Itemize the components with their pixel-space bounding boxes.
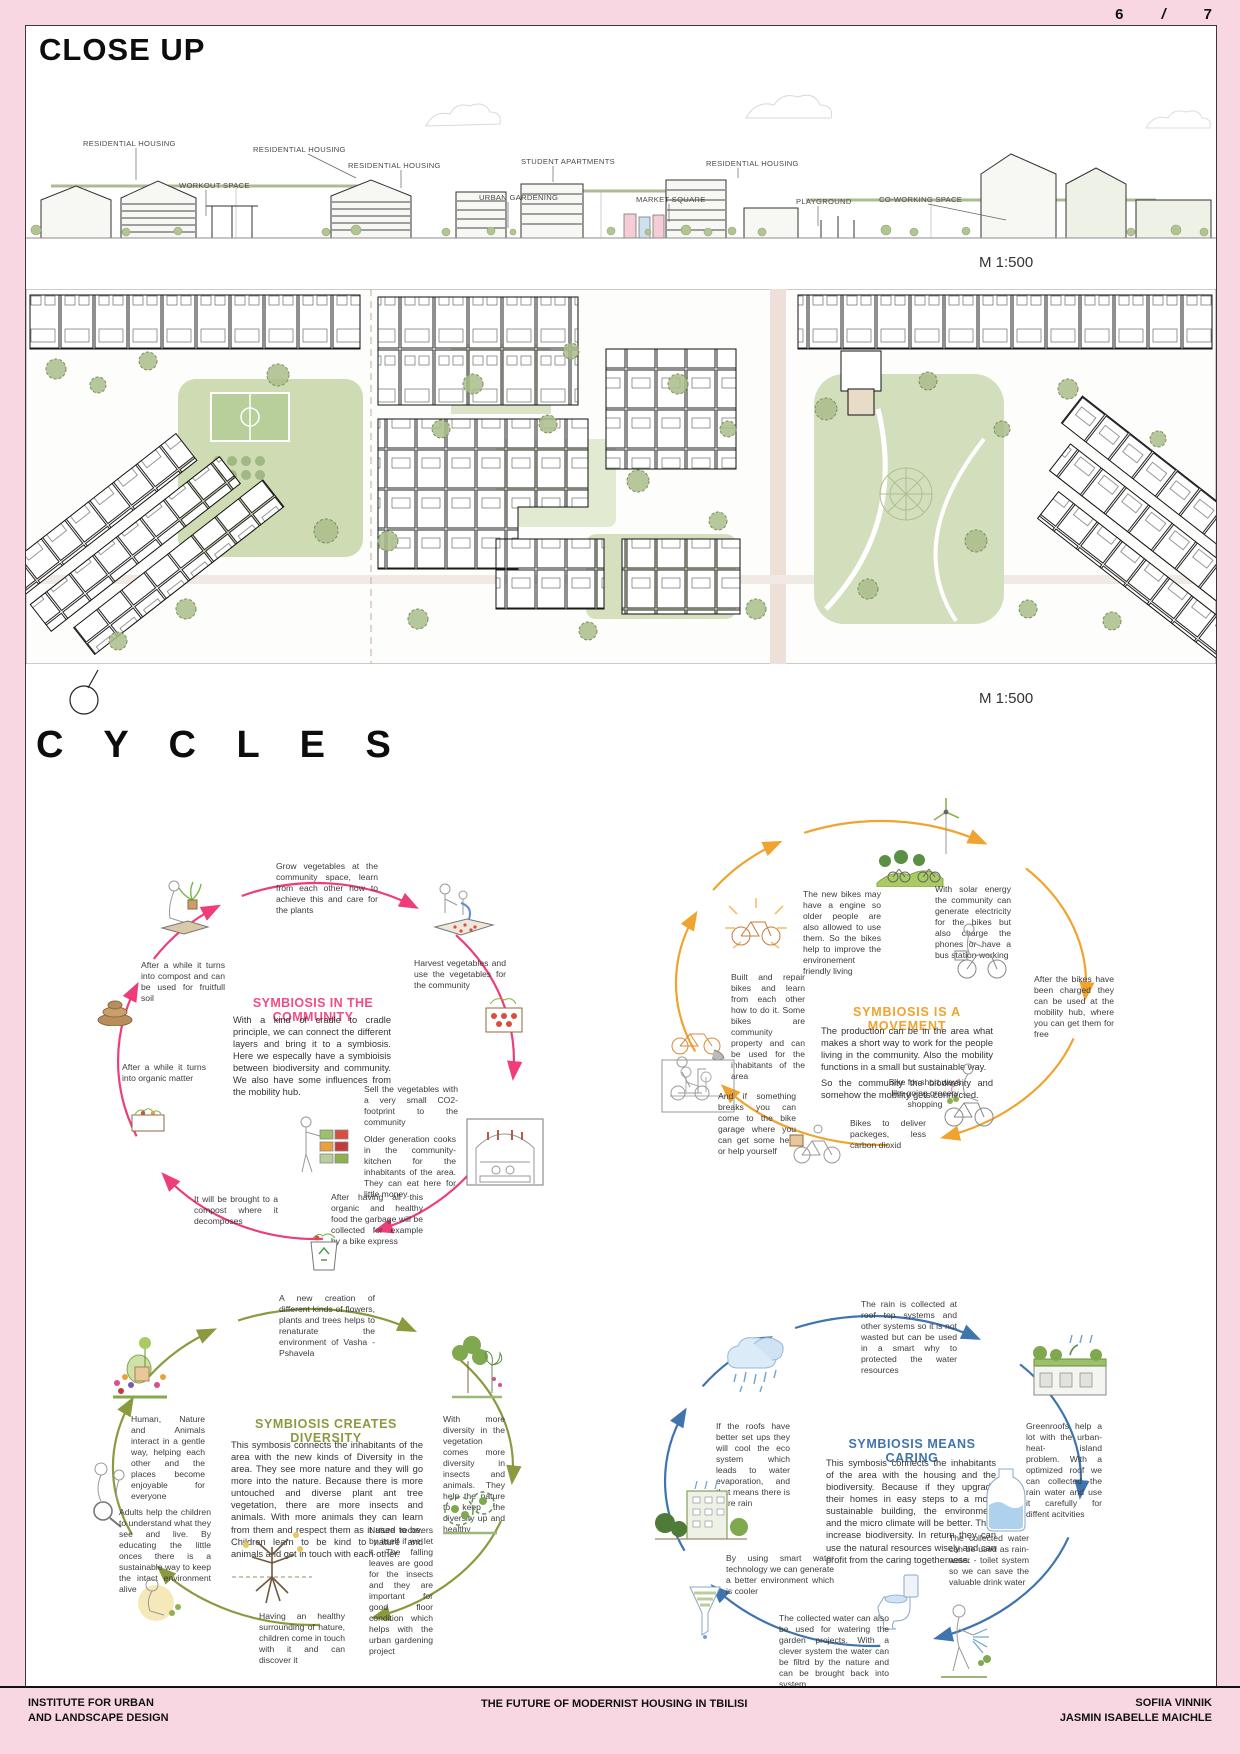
site-plan [26, 289, 1216, 664]
footer-author-1: SOFIIA VINNIK [1060, 1696, 1212, 1711]
footer: INSTITUTE FOR URBAN AND LANDSCAPE DESIGN… [0, 1686, 1240, 1754]
cycle-note: Sell the vegetables with a very small CO… [364, 1084, 458, 1128]
elevation-drawing: RESIDENTIAL HOUSING WORKOUT SPACE RESIDE… [26, 88, 1216, 268]
cycle-note: The collected water can be used as rain-… [949, 1533, 1029, 1588]
cycles-heading: C Y C L E S [36, 724, 406, 767]
green-facade-building-icon [653, 1477, 749, 1543]
water-jug-icon [983, 1467, 1029, 1533]
page-number-left: 6 [1115, 6, 1123, 23]
elevation-label: CO-WORKING SPACE [879, 195, 962, 204]
cycle-community: Grow vegetables at the community space, … [86, 856, 551, 1276]
cargo-bike-icon [953, 917, 1011, 985]
elevation-scale: M 1:500 [979, 254, 1033, 271]
cycle-note: After a while it turns into compost and … [141, 960, 225, 1004]
cycle-caring: The rain is collected at roof top system… [631, 1291, 1116, 1681]
detail-marker [62, 668, 122, 718]
footer-author-2: JASMIN ISABELLE MAICHLE [1060, 1711, 1212, 1726]
diverse-trees-icon [448, 1335, 506, 1399]
water-filter-icon [686, 1583, 724, 1641]
flower-meadow-icon [109, 1333, 171, 1401]
cycle-note: Greenroofs help a lot with the urban- he… [1026, 1421, 1102, 1520]
cycle-note: Human, Nature and Animals interact in a … [131, 1414, 205, 1502]
cycle-note: Bikes to deliver packeges, less carbon d… [850, 1118, 926, 1151]
community-kitchen-icon [466, 1118, 544, 1186]
elevation-label: WORKOUT SPACE [179, 181, 250, 190]
footer-institute-line2: AND LANDSCAPE DESIGN [28, 1711, 169, 1726]
market-stand-icon [294, 1114, 352, 1178]
elevation-label: MARKET SQUARE [636, 195, 706, 204]
bushes-icon [439, 1477, 501, 1541]
cycle-note: By using smart water technology we can g… [726, 1553, 834, 1597]
cycle-note: Bike for short ways like going grocery s… [886, 1077, 964, 1110]
vegetable-crate-icon [482, 996, 526, 1038]
footer-project-title: THE FUTURE OF MODERNIST HOUSING IN TBILI… [481, 1696, 747, 1710]
garden-watering-icon [931, 1601, 993, 1685]
planting-icon [156, 878, 212, 936]
solar-bike-icon [723, 896, 789, 958]
elevation-label: RESIDENTIAL HOUSING [348, 161, 441, 170]
elevation-label: PLAYGROUND [796, 197, 852, 206]
page-number-right: 7 [1204, 6, 1212, 23]
cycle-note: The new bikes may have a engine so older… [803, 889, 881, 977]
cycle-note: After having all this organic and health… [331, 1192, 423, 1247]
siteplan-scale: M 1:500 [979, 690, 1033, 707]
greenroof-building-icon [1026, 1333, 1110, 1399]
page-number-separator: / [1161, 6, 1165, 23]
cycle-note: A new creation of different kinds of flo… [279, 1293, 375, 1359]
cycle-note: And if something breaks you can come to … [718, 1091, 796, 1157]
rain-cloud-icon [714, 1326, 788, 1396]
watering-icon [431, 881, 495, 939]
bike-lane-trees-icon [875, 847, 945, 887]
page-title: CLOSE UP [39, 32, 205, 68]
footer-institute-line1: INSTITUTE FOR URBAN [28, 1696, 169, 1711]
cycle-note: Grow vegetables at the community space, … [276, 861, 378, 916]
cycle-note: It will be brought to a compost where it… [194, 1194, 278, 1227]
compost-pile-icon [96, 994, 134, 1026]
child-discovering-icon [126, 1569, 188, 1627]
page-numbers: 6 / 7 [1115, 6, 1212, 23]
cycle-note: Harvest vegetables and use the vegetable… [414, 958, 506, 991]
cycle-diversity: A new creation of different kinds of flo… [81, 1281, 546, 1653]
cycle-note: Nature recovers by itself if we let it. … [369, 1525, 433, 1657]
cycle-note: After the bikes have been charged they c… [1034, 974, 1114, 1040]
elevation-label: STUDENT APARTMENTS [521, 157, 615, 166]
cycle-note: The collected water can also be used for… [779, 1613, 889, 1687]
scooter-icon [668, 1053, 712, 1103]
elevation-label: RESIDENTIAL HOUSING [253, 145, 346, 154]
cycle-note: After a while it turns into organic matt… [122, 1062, 206, 1084]
vegetable-box-icon [129, 1106, 167, 1134]
elevation-label: RESIDENTIAL HOUSING [706, 159, 799, 168]
cycle-movement: With solar energy the community can gene… [638, 791, 1120, 1186]
cycle-note: The rain is collected at roof top system… [861, 1299, 957, 1376]
elevation-label: RESIDENTIAL HOUSING [83, 139, 176, 148]
cycle-note: Older generation cooks in the community-… [364, 1134, 456, 1200]
elevation-label: URBAN GARDENING [479, 193, 558, 202]
compost-bin-icon [307, 1232, 341, 1272]
delivery-bike-icon [788, 1121, 844, 1167]
tree-roots-icon [226, 1529, 318, 1607]
footer-institute: INSTITUTE FOR URBAN AND LANDSCAPE DESIGN [28, 1696, 169, 1726]
poster-sheet: CLOSE UP [25, 25, 1217, 1687]
cycle-note: Built and repair bikes and learn from ea… [731, 972, 805, 1082]
cycle-note: Having an healthy surrounding of nature,… [259, 1611, 345, 1666]
footer-authors: SOFIIA VINNIK JASMIN ISABELLE MAICHLE [1060, 1696, 1212, 1726]
